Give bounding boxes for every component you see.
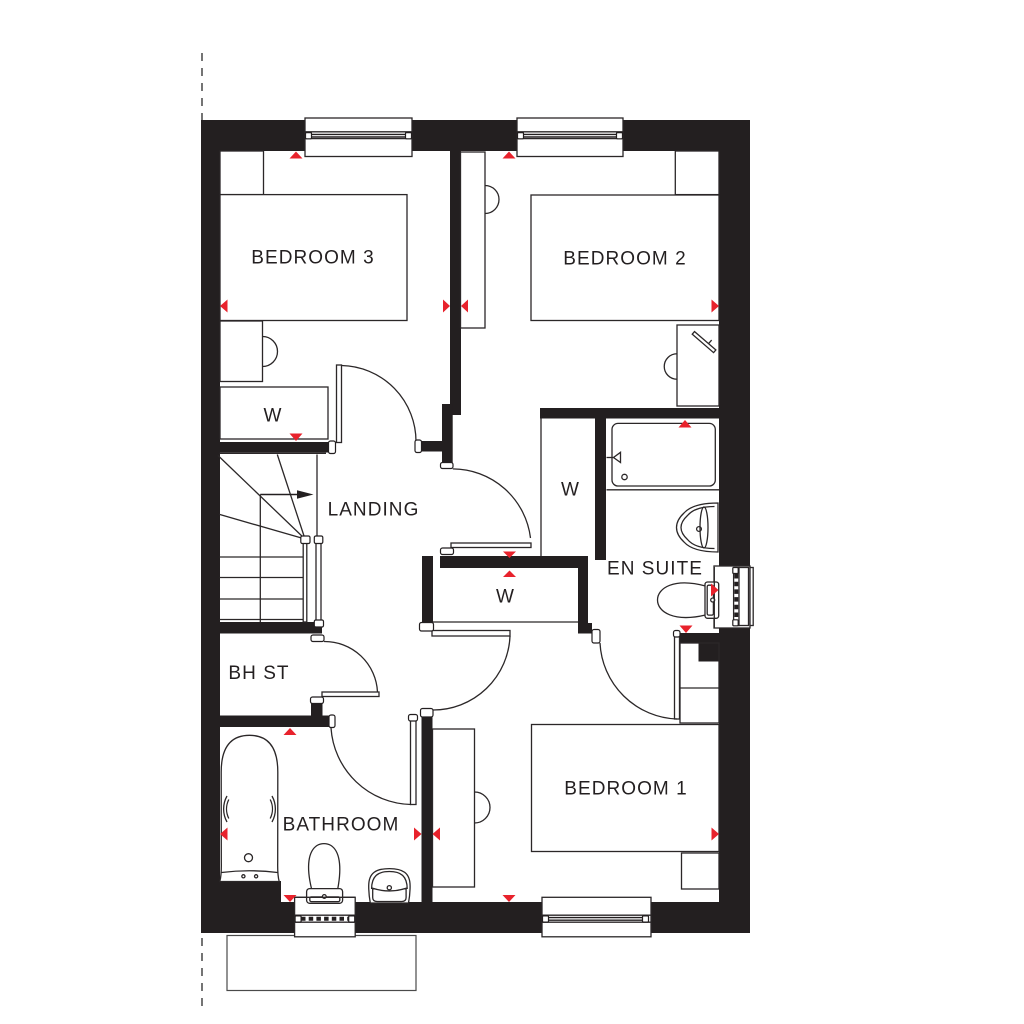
svg-text:W: W [496,587,515,608]
svg-text:BEDROOM 1: BEDROOM 1 [564,779,687,800]
svg-text:EN SUITE: EN SUITE [607,559,703,580]
svg-text:W: W [264,406,283,427]
svg-text:LANDING: LANDING [328,500,420,521]
svg-text:BEDROOM 2: BEDROOM 2 [563,249,686,270]
svg-text:BH ST: BH ST [228,663,289,684]
svg-text:W: W [561,480,580,501]
svg-text:BEDROOM 3: BEDROOM 3 [251,248,374,269]
svg-text:BATHROOM: BATHROOM [283,815,400,836]
